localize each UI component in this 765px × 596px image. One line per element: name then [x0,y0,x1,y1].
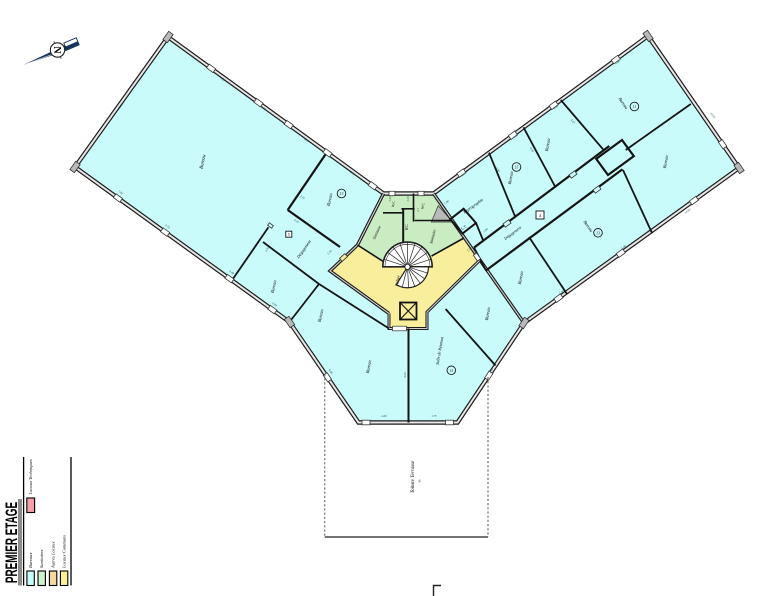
svg-text:13: 13 [449,369,453,373]
svg-text:2.1: 2.1 [416,208,420,212]
svg-text:PREMIER ETAGE: PREMIER ETAGE [2,502,20,583]
svg-text:Sanitaires: Sanitaires [39,549,44,568]
svg-text:1.30: 1.30 [406,196,410,202]
svg-text:Toiture Terrasse: Toiture Terrasse [411,460,416,493]
svg-text:1.35: 1.35 [388,196,392,202]
svg-text:5: 5 [288,232,290,237]
svg-text:13: 13 [340,192,344,196]
svg-text:Locaux Communs: Locaux Communs [61,535,66,569]
svg-text:13: 13 [596,231,600,235]
svg-text:15: 15 [515,166,519,170]
svg-text:5.00: 5.00 [403,372,407,378]
svg-text:Bureaux: Bureaux [28,553,33,568]
svg-text:Locaux Techniques: Locaux Techniques [28,459,33,495]
svg-text:4b: 4b [418,479,422,483]
svg-text:Autres Locaux: Autres Locaux [50,542,55,570]
svg-text:2.60: 2.60 [381,414,387,418]
svg-text:W.C.: W.C. [405,223,409,230]
svg-text:11: 11 [633,105,637,109]
svg-text:1.75: 1.75 [431,414,437,418]
svg-text:10.02: 10.02 [709,112,716,120]
svg-text:N: N [51,46,62,54]
